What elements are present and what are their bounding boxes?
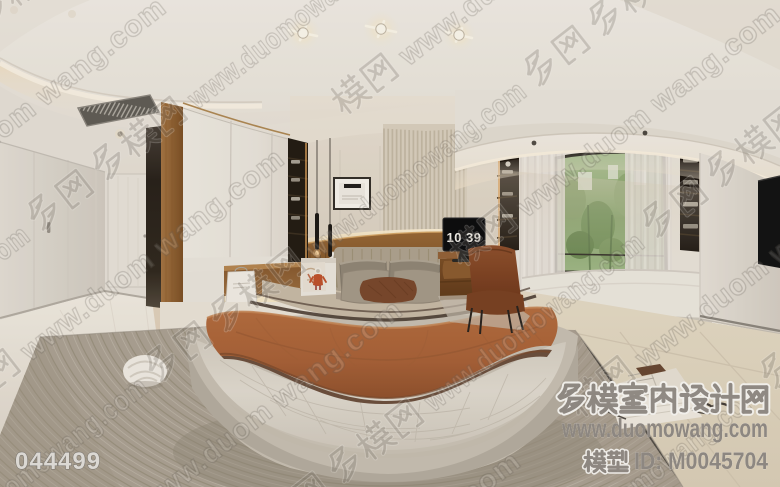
svg-text:ID: M0045704: ID: M0045704 (634, 448, 769, 475)
svg-text:www.duomowang.com: www.duomowang.com (561, 413, 768, 443)
svg-text:044499: 044499 (15, 448, 101, 475)
